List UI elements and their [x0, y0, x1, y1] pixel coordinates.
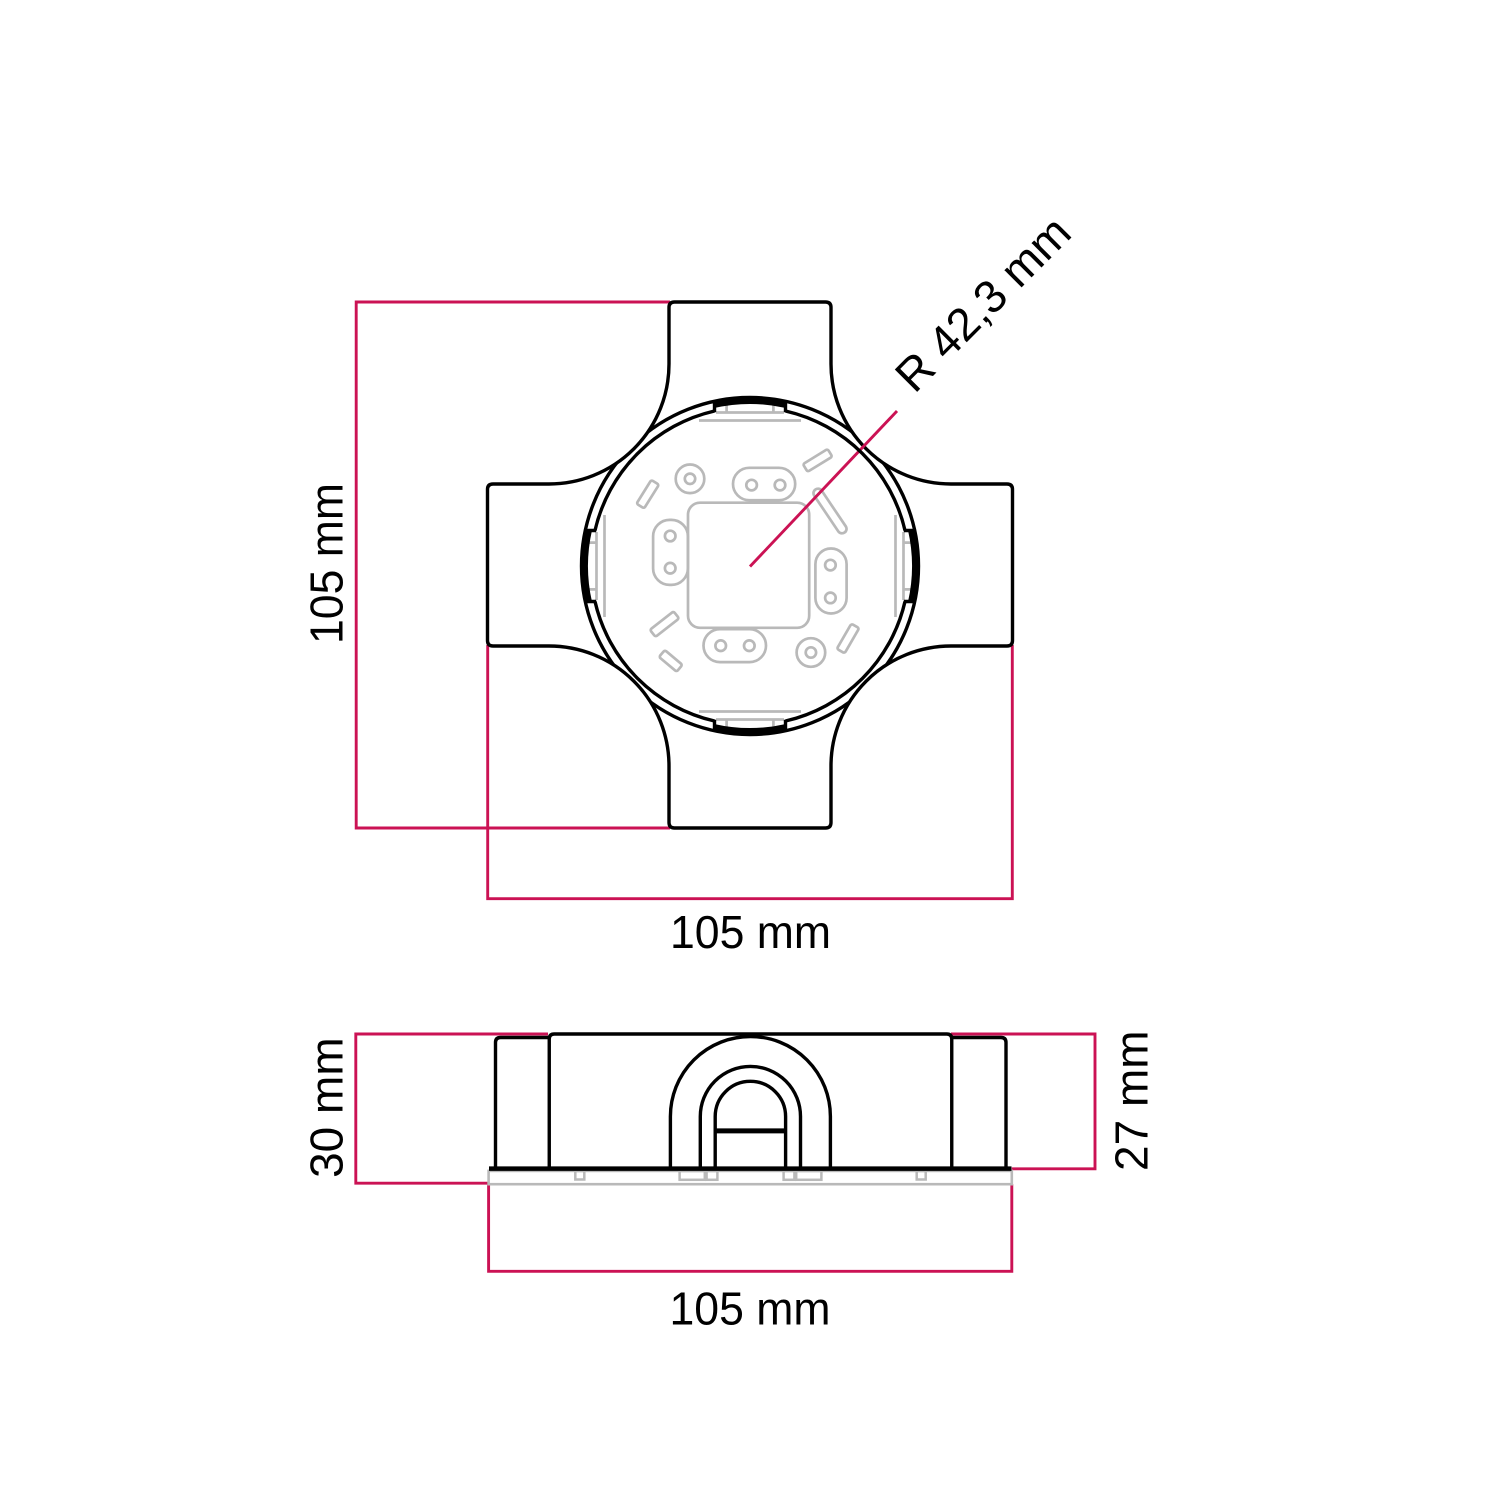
svg-text:105 mm: 105 mm [301, 483, 353, 644]
svg-text:R 42,3 mm: R 42,3 mm [885, 206, 1081, 402]
svg-text:27 mm: 27 mm [1106, 1030, 1158, 1171]
svg-text:30 mm: 30 mm [301, 1037, 353, 1178]
svg-text:105 mm: 105 mm [670, 906, 831, 958]
svg-text:105 mm: 105 mm [670, 1283, 831, 1335]
